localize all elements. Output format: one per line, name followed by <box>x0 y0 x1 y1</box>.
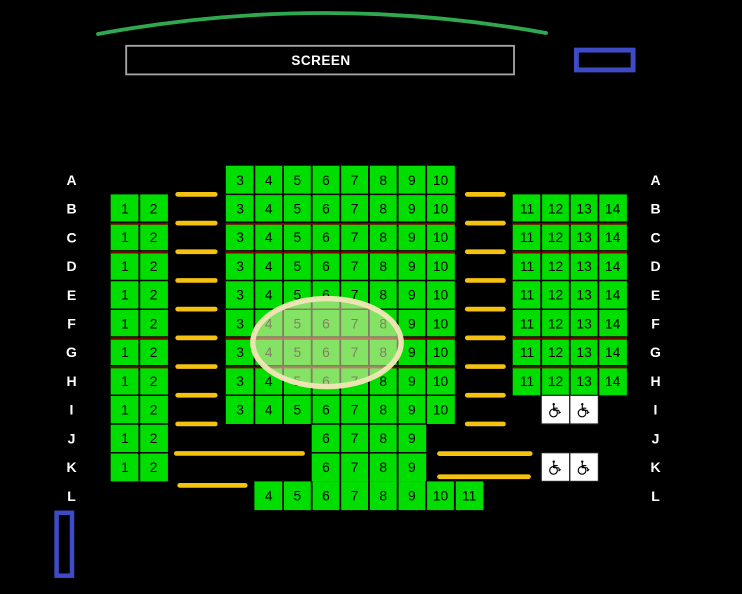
svg-text:13: 13 <box>576 345 592 360</box>
svg-text:J: J <box>652 430 660 446</box>
svg-text:9: 9 <box>408 489 416 504</box>
svg-text:2: 2 <box>150 345 158 360</box>
svg-text:8: 8 <box>379 489 387 504</box>
svg-text:11: 11 <box>520 230 534 245</box>
svg-text:14: 14 <box>605 230 621 245</box>
svg-text:1: 1 <box>121 259 129 274</box>
svg-text:10: 10 <box>433 230 449 245</box>
svg-text:14: 14 <box>605 374 621 389</box>
svg-text:12: 12 <box>548 202 563 217</box>
svg-text:11: 11 <box>520 202 534 217</box>
svg-text:I: I <box>70 402 74 418</box>
svg-text:1: 1 <box>121 345 129 360</box>
svg-text:4: 4 <box>265 230 273 245</box>
svg-text:G: G <box>66 344 77 360</box>
svg-text:7: 7 <box>351 173 359 188</box>
svg-text:12: 12 <box>548 345 563 360</box>
svg-text:7: 7 <box>351 202 359 217</box>
svg-text:1: 1 <box>121 460 129 475</box>
svg-text:2: 2 <box>150 230 158 245</box>
svg-text:13: 13 <box>576 288 592 303</box>
svg-text:4: 4 <box>265 173 273 188</box>
svg-text:3: 3 <box>236 259 244 274</box>
svg-text:4: 4 <box>265 288 273 303</box>
svg-text:9: 9 <box>408 316 416 331</box>
svg-text:B: B <box>650 201 660 217</box>
svg-text:1: 1 <box>121 230 129 245</box>
svg-text:4: 4 <box>265 402 273 417</box>
svg-text:6: 6 <box>322 259 330 274</box>
svg-text:13: 13 <box>576 230 592 245</box>
svg-text:9: 9 <box>408 288 416 303</box>
svg-text:11: 11 <box>520 288 534 303</box>
svg-text:10: 10 <box>433 316 449 331</box>
svg-text:A: A <box>650 172 660 188</box>
svg-text:5: 5 <box>294 230 302 245</box>
svg-text:C: C <box>66 229 76 245</box>
svg-text:A: A <box>66 172 76 188</box>
svg-text:2: 2 <box>150 316 158 331</box>
svg-text:C: C <box>650 229 660 245</box>
svg-text:14: 14 <box>605 288 621 303</box>
svg-text:12: 12 <box>548 374 563 389</box>
svg-text:7: 7 <box>351 402 359 417</box>
svg-text:10: 10 <box>433 173 449 188</box>
svg-text:K: K <box>650 459 660 475</box>
svg-text:12: 12 <box>548 230 563 245</box>
svg-text:11: 11 <box>520 345 534 360</box>
svg-text:2: 2 <box>150 431 158 446</box>
svg-text:G: G <box>650 344 661 360</box>
svg-text:6: 6 <box>322 431 330 446</box>
svg-text:12: 12 <box>548 288 563 303</box>
svg-text:9: 9 <box>408 460 416 475</box>
svg-text:13: 13 <box>576 259 592 274</box>
svg-text:5: 5 <box>294 173 302 188</box>
svg-text:1: 1 <box>121 202 129 217</box>
svg-text:10: 10 <box>433 259 449 274</box>
svg-text:6: 6 <box>322 489 330 504</box>
svg-text:11: 11 <box>462 489 476 504</box>
svg-text:4: 4 <box>265 259 273 274</box>
svg-text:1: 1 <box>121 374 129 389</box>
svg-text:7: 7 <box>351 431 359 446</box>
svg-text:7: 7 <box>351 230 359 245</box>
svg-text:4: 4 <box>265 202 273 217</box>
svg-text:6: 6 <box>322 402 330 417</box>
svg-text:4: 4 <box>265 374 273 389</box>
svg-text:6: 6 <box>322 230 330 245</box>
svg-text:F: F <box>67 316 76 332</box>
svg-text:11: 11 <box>520 316 534 331</box>
svg-text:5: 5 <box>294 259 302 274</box>
svg-text:2: 2 <box>150 202 158 217</box>
svg-text:F: F <box>651 316 660 332</box>
svg-text:5: 5 <box>294 402 302 417</box>
svg-text:9: 9 <box>408 431 416 446</box>
svg-text:9: 9 <box>408 402 416 417</box>
svg-text:11: 11 <box>520 374 534 389</box>
svg-text:13: 13 <box>576 316 592 331</box>
svg-text:3: 3 <box>236 316 244 331</box>
svg-text:6: 6 <box>322 202 330 217</box>
svg-text:12: 12 <box>548 259 563 274</box>
svg-text:3: 3 <box>236 230 244 245</box>
svg-text:2: 2 <box>150 374 158 389</box>
svg-text:6: 6 <box>322 173 330 188</box>
svg-text:8: 8 <box>379 173 387 188</box>
svg-text:3: 3 <box>236 173 244 188</box>
svg-text:6: 6 <box>322 460 330 475</box>
svg-text:8: 8 <box>379 230 387 245</box>
svg-text:D: D <box>66 258 76 274</box>
svg-text:9: 9 <box>408 259 416 274</box>
svg-text:10: 10 <box>433 288 449 303</box>
svg-text:9: 9 <box>408 345 416 360</box>
svg-text:H: H <box>66 373 76 389</box>
svg-text:8: 8 <box>379 402 387 417</box>
svg-text:14: 14 <box>605 316 621 331</box>
svg-text:9: 9 <box>408 374 416 389</box>
svg-text:3: 3 <box>236 402 244 417</box>
svg-text:B: B <box>66 201 76 217</box>
svg-text:SCREEN: SCREEN <box>291 53 350 68</box>
svg-text:9: 9 <box>408 230 416 245</box>
svg-text:2: 2 <box>150 402 158 417</box>
svg-text:3: 3 <box>236 202 244 217</box>
svg-text:1: 1 <box>121 402 129 417</box>
svg-text:9: 9 <box>408 202 416 217</box>
svg-text:1: 1 <box>121 316 129 331</box>
svg-text:12: 12 <box>548 316 563 331</box>
svg-text:E: E <box>651 287 660 303</box>
svg-text:D: D <box>650 258 660 274</box>
svg-text:14: 14 <box>605 345 621 360</box>
svg-text:13: 13 <box>576 202 592 217</box>
svg-text:7: 7 <box>351 460 359 475</box>
svg-text:8: 8 <box>379 259 387 274</box>
svg-text:3: 3 <box>236 288 244 303</box>
svg-text:3: 3 <box>236 345 244 360</box>
svg-text:8: 8 <box>379 460 387 475</box>
svg-text:3: 3 <box>236 374 244 389</box>
svg-text:8: 8 <box>379 431 387 446</box>
svg-text:4: 4 <box>265 489 273 504</box>
svg-text:E: E <box>67 287 76 303</box>
svg-text:2: 2 <box>150 288 158 303</box>
svg-text:10: 10 <box>433 489 449 504</box>
svg-text:8: 8 <box>379 288 387 303</box>
svg-text:7: 7 <box>351 259 359 274</box>
svg-text:14: 14 <box>605 202 621 217</box>
svg-text:1: 1 <box>121 288 129 303</box>
svg-text:10: 10 <box>433 374 449 389</box>
svg-text:13: 13 <box>576 374 592 389</box>
svg-text:5: 5 <box>294 489 302 504</box>
svg-text:14: 14 <box>605 259 621 274</box>
svg-text:10: 10 <box>433 202 449 217</box>
svg-text:H: H <box>650 373 660 389</box>
svg-text:2: 2 <box>150 460 158 475</box>
svg-text:K: K <box>66 459 76 475</box>
svg-text:1: 1 <box>121 431 129 446</box>
svg-text:2: 2 <box>150 259 158 274</box>
svg-text:7: 7 <box>351 489 359 504</box>
svg-text:L: L <box>67 488 76 504</box>
svg-text:9: 9 <box>408 173 416 188</box>
svg-text:J: J <box>68 430 76 446</box>
svg-text:11: 11 <box>520 259 534 274</box>
svg-text:10: 10 <box>433 402 449 417</box>
svg-text:L: L <box>651 488 660 504</box>
svg-text:10: 10 <box>433 345 449 360</box>
svg-text:I: I <box>654 402 658 418</box>
svg-text:5: 5 <box>294 202 302 217</box>
svg-text:8: 8 <box>379 202 387 217</box>
